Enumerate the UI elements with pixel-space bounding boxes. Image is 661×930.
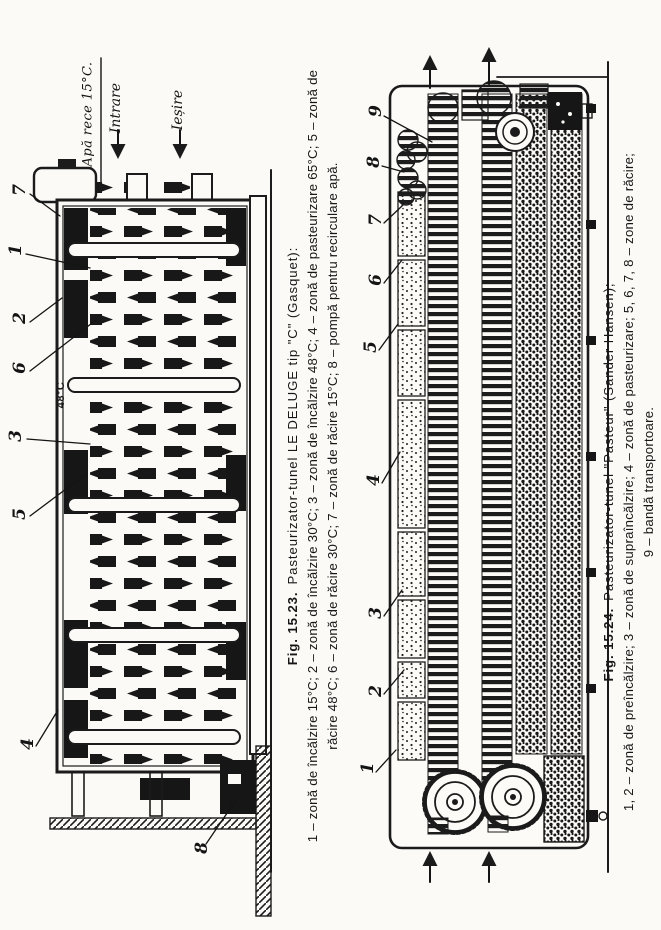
fig1523-title-text: Pasteurizator-tunel LE DELUGE tip "C" (G… [285, 247, 300, 585]
right-machine-drawing [376, 50, 608, 882]
scanned-page: Apă rece 15°C. Intrare Ieșire 48°C 7 1 2… [0, 0, 661, 930]
fig1523-callout-6: 6 [10, 362, 30, 374]
fig1523-caption: Fig. 15.23.Pasteurizator-tunel LE DELUGE… [283, 6, 343, 906]
fig1523-callout-2: 2 [10, 312, 30, 324]
fig1524-callout-6: 6 [366, 274, 386, 286]
fig1524-legend-line2: 9 – bandă transportoare. [639, 42, 659, 922]
temperature-label: 48°C [55, 382, 67, 409]
fig1524-callout-2: 2 [366, 685, 386, 697]
fig1524-legend-line1: 1, 2 – zonă de preîncălzire; 3 – zonă de… [619, 42, 639, 922]
fig1523-callout-8: 8 [192, 842, 212, 854]
outlet-label: Ieșire [170, 90, 186, 130]
fig1523-callout-5: 5 [10, 508, 30, 520]
fig1524-callout-1: 1 [358, 762, 378, 774]
fig1523-caption-title: Fig. 15.23.Pasteurizator-tunel LE DELUGE… [283, 6, 303, 906]
fig1524-callout-9: 9 [366, 105, 386, 117]
fig1523-callout-3: 3 [6, 430, 26, 442]
fig1524-callout-4: 4 [364, 474, 384, 486]
fig1523-callout-1: 1 [6, 244, 26, 256]
inlet-label: Intrare [108, 83, 124, 133]
fig1524-callout-3: 3 [366, 607, 386, 619]
fig1523-legend-line1: 1 – zonă de încălzire 15°C; 2 – zonă de … [303, 6, 323, 906]
fig1523-callout-4: 4 [18, 738, 38, 750]
fig1524-callout-7: 7 [366, 214, 386, 226]
fig1524-caption-title: Fig. 15.24.Pasteurizator-tunel "Pasteur"… [599, 42, 619, 922]
fig1523-legend-line2: răcire 48°C; 6 – zonă de răcire 30°C; 7 … [323, 6, 343, 906]
fig1524-label: Fig. 15.24. [601, 608, 616, 682]
fig1523-callout-7: 7 [10, 184, 30, 196]
fig1524-title-text: Pasteurizator-tunel "Pasteur" (Sander Ha… [601, 283, 616, 601]
fig1524-callout-5: 5 [361, 341, 381, 353]
fig1524-caption: Fig. 15.24.Pasteurizator-tunel "Pasteur"… [599, 42, 659, 922]
fig1524-callout-8: 8 [364, 156, 384, 168]
fig1523-label: Fig. 15.23. [285, 592, 300, 666]
water-inlet-label: Apă rece 15°C. [81, 62, 96, 167]
left-machine-drawing [26, 58, 271, 916]
